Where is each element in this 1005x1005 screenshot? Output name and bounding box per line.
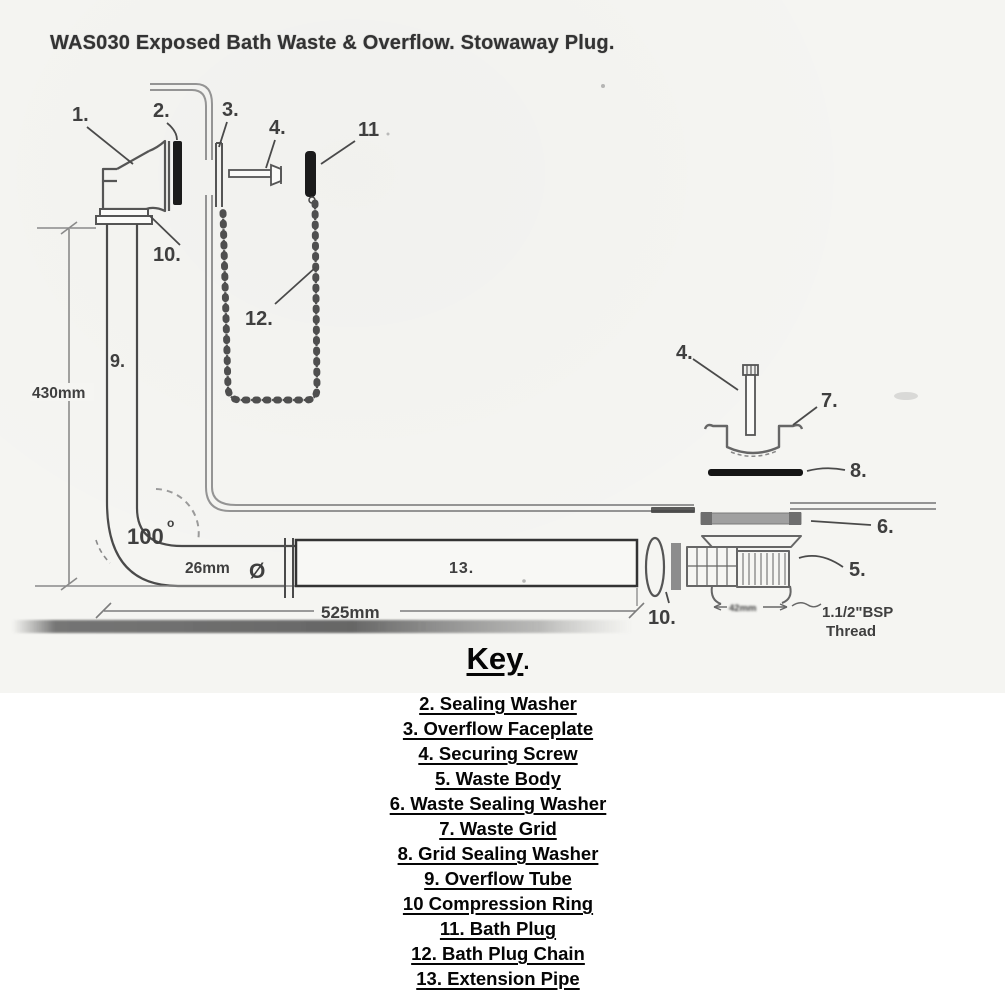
key-item: 8. Grid Sealing Washer	[0, 841, 996, 866]
part-label-3: 3.	[222, 99, 239, 121]
angle-degree-symbol: o	[167, 516, 174, 530]
diameter-symbol: Ø	[249, 560, 265, 583]
dim-525mm-label: 525mm	[321, 603, 380, 622]
part-label-9: 9.	[110, 351, 125, 371]
waste-outlet-dim-label: 42mm	[729, 603, 756, 614]
part-label-5: 5.	[849, 559, 866, 581]
securing-screw-top	[229, 165, 281, 185]
dim-26mm-label: 26mm	[185, 560, 230, 577]
part-label-8: 8.	[850, 460, 867, 482]
part-label-1: 1.	[72, 104, 89, 126]
bsp-thread-label-line1: 1.1/2"BSP	[822, 604, 893, 621]
bath-plug	[305, 151, 316, 197]
key-item: 7. Waste Grid	[0, 816, 996, 841]
part-label-12: 12.	[245, 308, 273, 330]
part-label-10-top: 10.	[153, 244, 181, 266]
part-label-7: 7.	[821, 390, 838, 412]
key-heading: Key.	[0, 641, 996, 677]
key-item: 11. Bath Plug	[0, 916, 996, 941]
bath-plug-chain	[223, 203, 317, 400]
waste-sealing-washer	[701, 512, 801, 525]
part-label-4-top: 4.	[269, 117, 286, 139]
key-item: 12. Bath Plug Chain	[0, 941, 996, 966]
key-item: 13. Extension Pipe	[0, 966, 996, 991]
securing-screw-right	[743, 365, 758, 435]
part-label-13: 13.	[449, 560, 474, 577]
sealing-washer	[173, 141, 182, 205]
part-label-6: 6.	[877, 516, 894, 538]
part-label-4-right: 4.	[676, 342, 693, 364]
key-item: 10 Compression Ring	[0, 891, 996, 916]
compression-nut-flange	[96, 209, 152, 224]
grid-sealing-washer	[708, 469, 803, 476]
part-label-2: 2.	[153, 100, 170, 122]
bsp-thread-label-line2: Thread	[826, 623, 876, 640]
key-item: 3. Overflow Faceplate	[0, 716, 996, 741]
key-heading-period: .	[523, 649, 529, 674]
key-item: 5. Waste Body	[0, 766, 996, 791]
overflow-faceplate	[216, 143, 222, 207]
floor-edge-shading	[651, 507, 695, 513]
key-heading-text: Key	[467, 641, 524, 676]
dimension-430mm	[35, 222, 360, 590]
waste-body	[687, 536, 801, 604]
part-label-11: 11	[358, 119, 379, 141]
key-item: 2. Sealing Washer	[0, 691, 996, 716]
overflow-elbow	[103, 141, 169, 211]
part-label-10-right: 10.	[648, 607, 676, 629]
key-item: 6. Waste Sealing Washer	[0, 791, 996, 816]
angle-label: 100	[127, 524, 164, 549]
dim-430mm-label: 430mm	[32, 385, 85, 402]
key-list: 2. Sealing Washer 3. Overflow Faceplate …	[0, 691, 996, 991]
bath-outline	[150, 84, 936, 511]
key-item: 4. Securing Screw	[0, 741, 996, 766]
compression-ring-right	[646, 538, 681, 596]
key-item: 9. Overflow Tube	[0, 866, 996, 891]
page: WAS030 Exposed Bath Waste & Overflow. St…	[0, 0, 1005, 1005]
leader-lines	[87, 122, 871, 603]
exploded-diagram: 430mm 100 o 26mm Ø 13. 525mm	[0, 0, 1005, 660]
bend-dashed-mark	[96, 540, 110, 563]
diagram-section: WAS030 Exposed Bath Waste & Overflow. St…	[0, 0, 1005, 693]
